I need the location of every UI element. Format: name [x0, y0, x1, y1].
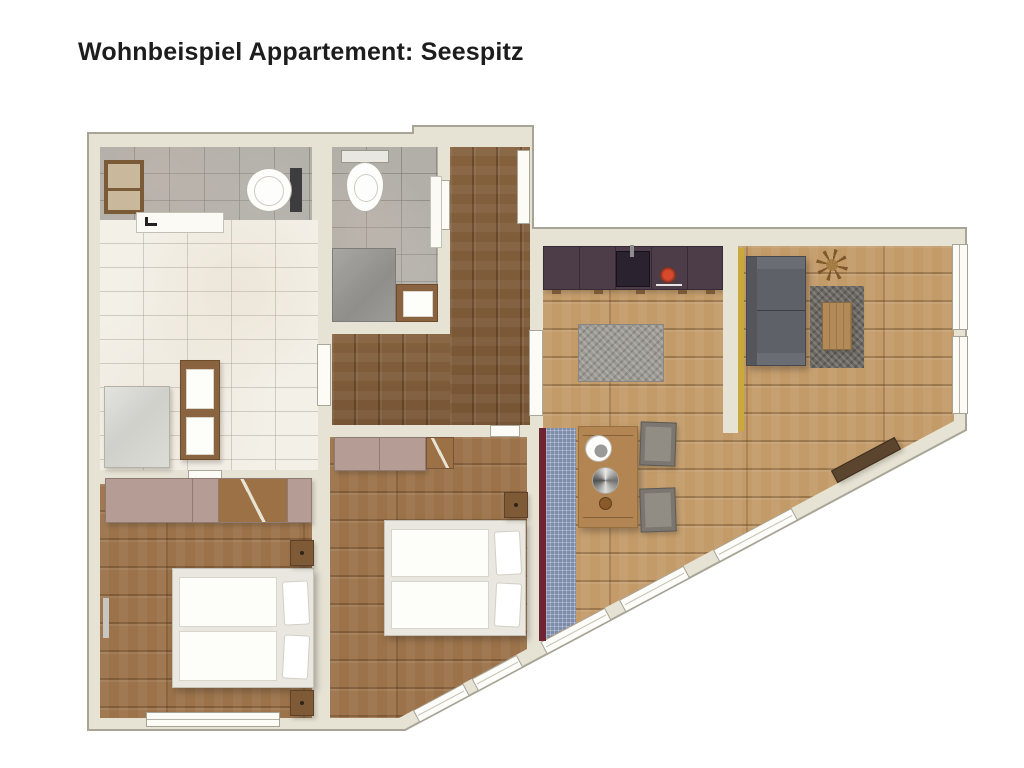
chair-cushion	[644, 427, 671, 462]
kitchen-counter-icon	[543, 246, 723, 290]
kitchen-rug	[578, 324, 664, 382]
nightstand-icon	[290, 540, 314, 566]
living-window	[952, 336, 968, 414]
sideboard-icon	[334, 437, 426, 471]
washbasin-cabinet-icon	[396, 284, 438, 322]
bathroom-shelf-icon	[430, 176, 442, 248]
shower-icon	[332, 248, 396, 322]
blue-runner-rug	[546, 428, 576, 639]
sofa-back	[747, 257, 757, 365]
double-bed-icon	[172, 568, 314, 688]
wardrobe-divider	[192, 479, 193, 522]
counter-foot	[706, 290, 715, 294]
bowl-icon	[592, 467, 619, 494]
sink-faucet-icon	[630, 245, 634, 257]
counter-foot	[678, 290, 687, 294]
nightstand-icon	[504, 492, 528, 518]
mattress	[179, 577, 277, 627]
pillow	[282, 580, 310, 625]
cooktop-icon	[660, 267, 676, 283]
curtain-maroon-strip	[539, 428, 546, 641]
washbasin-icon	[186, 369, 214, 409]
living-divider-wall	[723, 246, 738, 433]
toilet-icon	[246, 166, 304, 214]
washbasin-icon	[403, 291, 433, 317]
cooktop-line	[656, 284, 682, 286]
wardrobe-icon	[105, 478, 312, 523]
sofa-cushion-line	[757, 310, 805, 311]
mattress	[391, 581, 489, 629]
window-frame-divider	[108, 188, 140, 191]
pillow	[282, 634, 310, 679]
shower-icon	[104, 386, 170, 468]
plant-center	[826, 259, 838, 271]
counter-foot	[636, 290, 645, 294]
living-window	[952, 244, 968, 330]
bathtub-icon	[136, 212, 224, 233]
coffee-table-icon	[822, 302, 852, 350]
dining-table-icon	[578, 426, 638, 528]
dining-doorway-door	[529, 330, 543, 416]
bedroom2-door	[490, 425, 520, 437]
toilet-bowl-inner	[254, 176, 284, 206]
living-rug	[810, 286, 864, 368]
double-bed-icon	[384, 520, 526, 636]
wardrobe-open-door	[218, 479, 288, 522]
toilet-bowl-inner	[354, 174, 378, 202]
double-washbasin-icon	[180, 360, 220, 460]
dining-chair-icon	[639, 487, 677, 532]
mattress	[391, 529, 489, 577]
sofa-icon	[746, 256, 806, 366]
room-corridor-floor	[332, 334, 450, 425]
toilet-icon	[341, 150, 389, 214]
main-bathroom-door	[317, 344, 331, 406]
pillow	[494, 582, 522, 627]
mattress	[179, 631, 277, 681]
floorplan-page: Wohnbeispiel Appartement: Seespitz	[0, 0, 1024, 768]
plant-icon	[816, 249, 848, 281]
yellow-accent-wall	[738, 248, 744, 431]
table-edge-line	[583, 435, 633, 436]
pillow	[494, 530, 522, 575]
sideboard-divider	[379, 438, 380, 470]
nightstand-icon	[290, 690, 314, 716]
washbasin-icon	[186, 417, 214, 455]
wardrobe-open-door	[426, 437, 454, 469]
decor-icon	[599, 497, 612, 510]
radiator-icon	[103, 598, 109, 638]
counter-foot	[594, 290, 603, 294]
window-frame-icon	[104, 160, 144, 214]
plate-icon	[585, 435, 612, 462]
faucet-icon-2	[145, 217, 148, 226]
entrance-door	[517, 150, 530, 224]
dining-chair-icon	[639, 421, 677, 466]
chair-cushion	[644, 493, 671, 528]
counter-foot	[552, 290, 561, 294]
table-edge-line	[583, 517, 633, 518]
bedroom1-window	[146, 712, 280, 727]
